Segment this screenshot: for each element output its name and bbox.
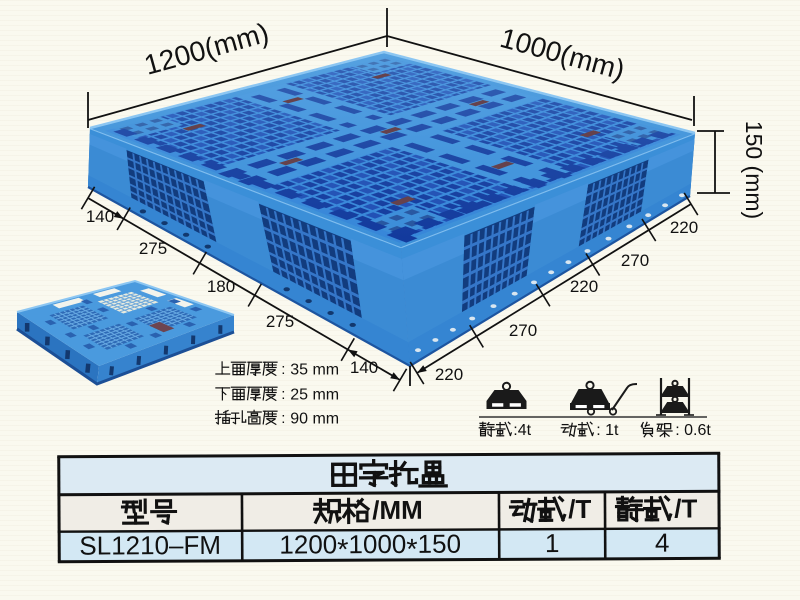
svg-text:275: 275 xyxy=(266,312,294,331)
svg-text:180: 180 xyxy=(207,277,235,296)
svg-text:: 1t: : 1t xyxy=(596,422,619,439)
svg-text:220: 220 xyxy=(670,218,698,237)
svg-text:275: 275 xyxy=(139,239,167,258)
svg-text:1000(mm): 1000(mm) xyxy=(497,22,628,86)
svg-text:270: 270 xyxy=(509,321,537,340)
svg-text:220: 220 xyxy=(435,365,463,384)
svg-text:35 mm: 35 mm xyxy=(290,362,339,379)
svg-text:SL1210–FM: SL1210–FM xyxy=(79,530,221,561)
svg-text:140: 140 xyxy=(350,358,378,377)
svg-text::: : xyxy=(281,361,285,378)
svg-text:: 0.6t: : 0.6t xyxy=(675,422,711,439)
svg-text:220: 220 xyxy=(570,277,598,296)
svg-text::: : xyxy=(281,410,285,427)
svg-text:4: 4 xyxy=(655,528,670,558)
svg-text:/T: /T xyxy=(674,493,697,523)
svg-text::4t: :4t xyxy=(513,422,531,439)
svg-text:1: 1 xyxy=(545,528,560,558)
svg-text:270: 270 xyxy=(621,251,649,270)
svg-text:1200(mm): 1200(mm) xyxy=(141,17,272,81)
svg-text:/T: /T xyxy=(568,494,591,524)
svg-text::: : xyxy=(281,386,285,403)
svg-text:25 mm: 25 mm xyxy=(290,387,339,404)
svg-text:150 (mm): 150 (mm) xyxy=(741,121,767,219)
svg-text:/MM: /MM xyxy=(372,495,423,525)
svg-text:90 mm: 90 mm xyxy=(290,411,339,428)
svg-text:140: 140 xyxy=(86,207,114,226)
